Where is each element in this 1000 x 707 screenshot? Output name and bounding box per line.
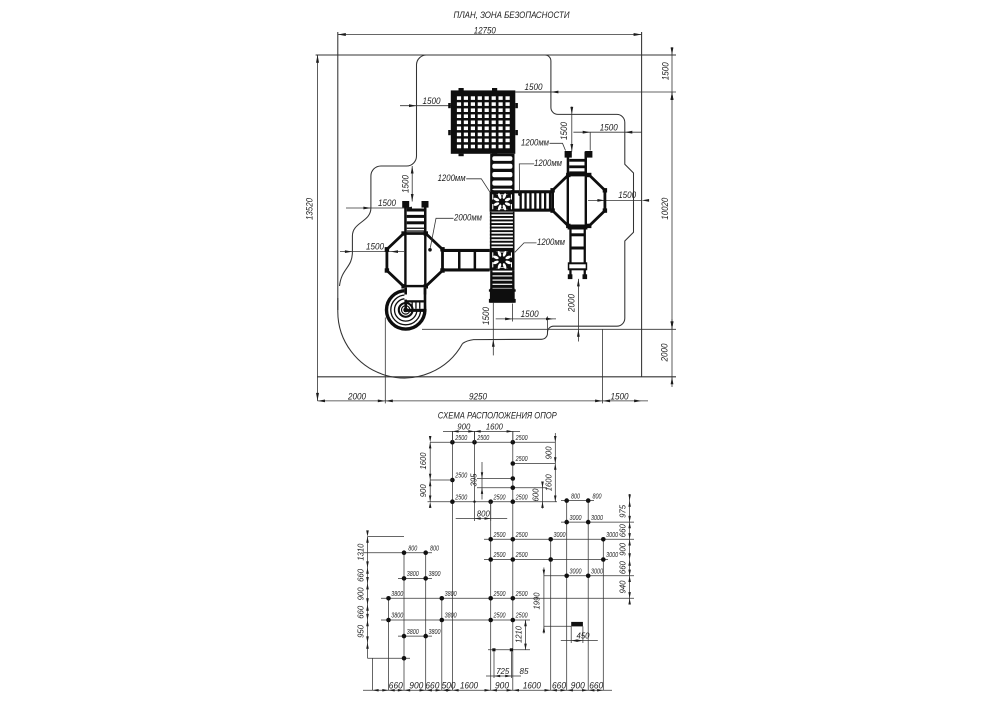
svg-text:1600: 1600 bbox=[544, 474, 554, 491]
svg-text:2500: 2500 bbox=[515, 492, 528, 501]
svg-text:900: 900 bbox=[571, 681, 585, 691]
svg-text:2500: 2500 bbox=[515, 454, 528, 463]
svg-text:1500: 1500 bbox=[521, 309, 539, 319]
svg-text:1500: 1500 bbox=[525, 82, 543, 92]
svg-text:3000: 3000 bbox=[606, 550, 618, 559]
svg-text:1310: 1310 bbox=[356, 543, 366, 560]
svg-text:1500: 1500 bbox=[559, 122, 569, 140]
svg-text:2500: 2500 bbox=[493, 492, 506, 501]
svg-text:660: 660 bbox=[356, 569, 366, 582]
svg-text:660: 660 bbox=[389, 681, 403, 691]
svg-text:660: 660 bbox=[617, 561, 627, 574]
svg-text:2000: 2000 bbox=[567, 294, 577, 313]
svg-text:3800: 3800 bbox=[429, 627, 441, 636]
svg-text:1200мм: 1200мм bbox=[438, 173, 466, 183]
svg-text:1990: 1990 bbox=[532, 592, 542, 609]
svg-text:12750: 12750 bbox=[474, 25, 496, 35]
svg-text:900: 900 bbox=[495, 681, 509, 691]
svg-text:800: 800 bbox=[571, 491, 580, 500]
svg-text:660: 660 bbox=[589, 681, 603, 691]
svg-text:3800: 3800 bbox=[445, 611, 457, 620]
svg-text:800: 800 bbox=[593, 491, 602, 500]
svg-text:2500: 2500 bbox=[454, 492, 467, 501]
svg-text:395: 395 bbox=[468, 473, 478, 486]
svg-text:1500: 1500 bbox=[423, 96, 441, 106]
svg-text:2500: 2500 bbox=[515, 433, 528, 442]
svg-text:1500: 1500 bbox=[618, 190, 636, 200]
svg-text:2500: 2500 bbox=[493, 550, 506, 559]
svg-text:9250: 9250 bbox=[469, 392, 487, 402]
svg-text:940: 940 bbox=[617, 580, 627, 593]
svg-text:10020: 10020 bbox=[660, 198, 670, 220]
svg-text:900: 900 bbox=[418, 484, 428, 497]
svg-text:1200мм: 1200мм bbox=[537, 237, 565, 247]
svg-text:600: 600 bbox=[530, 488, 540, 501]
svg-text:СХЕМА РАСПОЛОЖЕНИЯ ОПОР: СХЕМА РАСПОЛОЖЕНИЯ ОПОР bbox=[438, 410, 557, 420]
svg-text:800: 800 bbox=[408, 543, 417, 552]
svg-text:3000: 3000 bbox=[554, 530, 566, 539]
svg-text:2500: 2500 bbox=[493, 530, 506, 539]
svg-text:1500: 1500 bbox=[600, 122, 618, 132]
svg-text:2500: 2500 bbox=[515, 589, 528, 598]
svg-text:3800: 3800 bbox=[391, 589, 403, 598]
svg-text:85: 85 bbox=[520, 666, 529, 676]
svg-text:2500: 2500 bbox=[477, 433, 490, 442]
svg-text:800: 800 bbox=[430, 543, 439, 552]
svg-text:2500: 2500 bbox=[515, 550, 528, 559]
svg-text:1500: 1500 bbox=[481, 307, 491, 325]
svg-text:500: 500 bbox=[442, 681, 456, 691]
svg-text:660: 660 bbox=[552, 681, 566, 691]
svg-text:725: 725 bbox=[496, 666, 509, 676]
svg-text:1500: 1500 bbox=[401, 175, 411, 193]
svg-text:2500: 2500 bbox=[515, 530, 528, 539]
svg-text:13520: 13520 bbox=[304, 198, 314, 220]
svg-text:2500: 2500 bbox=[454, 471, 467, 480]
svg-text:900: 900 bbox=[409, 681, 423, 691]
svg-text:2000: 2000 bbox=[347, 392, 366, 402]
svg-text:2000: 2000 bbox=[659, 344, 669, 363]
svg-text:800: 800 bbox=[477, 508, 490, 518]
svg-text:950: 950 bbox=[356, 625, 366, 638]
svg-text:3800: 3800 bbox=[407, 627, 419, 636]
svg-text:450: 450 bbox=[577, 631, 590, 641]
svg-text:3000: 3000 bbox=[570, 513, 582, 522]
svg-text:975: 975 bbox=[617, 505, 627, 518]
svg-text:3800: 3800 bbox=[445, 589, 457, 598]
svg-text:660: 660 bbox=[617, 524, 627, 537]
svg-text:3800: 3800 bbox=[429, 569, 441, 578]
svg-text:3000: 3000 bbox=[570, 567, 582, 576]
svg-text:3000: 3000 bbox=[606, 530, 618, 539]
svg-text:ПЛАН, ЗОНА БЕЗОПАСНОСТИ: ПЛАН, ЗОНА БЕЗОПАСНОСТИ bbox=[454, 10, 570, 20]
svg-text:1500: 1500 bbox=[611, 392, 629, 402]
svg-text:900: 900 bbox=[617, 543, 627, 556]
svg-text:660: 660 bbox=[356, 606, 366, 619]
svg-text:2500: 2500 bbox=[493, 611, 506, 620]
svg-text:3800: 3800 bbox=[391, 611, 403, 620]
svg-text:900: 900 bbox=[544, 446, 554, 459]
svg-text:2000мм: 2000мм bbox=[453, 212, 482, 222]
svg-text:1210: 1210 bbox=[513, 626, 523, 643]
svg-text:1500: 1500 bbox=[378, 198, 396, 208]
svg-text:1600: 1600 bbox=[460, 681, 478, 691]
svg-text:3800: 3800 bbox=[407, 569, 419, 578]
svg-text:1500: 1500 bbox=[661, 62, 671, 80]
svg-text:1600: 1600 bbox=[486, 422, 503, 432]
svg-text:900: 900 bbox=[457, 422, 470, 432]
svg-text:2500: 2500 bbox=[515, 611, 528, 620]
svg-text:660: 660 bbox=[425, 681, 439, 691]
svg-text:1200мм: 1200мм bbox=[534, 158, 562, 168]
svg-text:900: 900 bbox=[356, 587, 366, 600]
svg-text:1500: 1500 bbox=[366, 242, 384, 252]
svg-text:1200мм: 1200мм bbox=[521, 137, 549, 147]
svg-text:2500: 2500 bbox=[493, 589, 506, 598]
svg-text:2500: 2500 bbox=[454, 433, 467, 442]
svg-text:1600: 1600 bbox=[418, 452, 428, 469]
svg-text:1600: 1600 bbox=[523, 681, 541, 691]
svg-text:3000: 3000 bbox=[591, 513, 603, 522]
svg-text:3000: 3000 bbox=[591, 567, 603, 576]
